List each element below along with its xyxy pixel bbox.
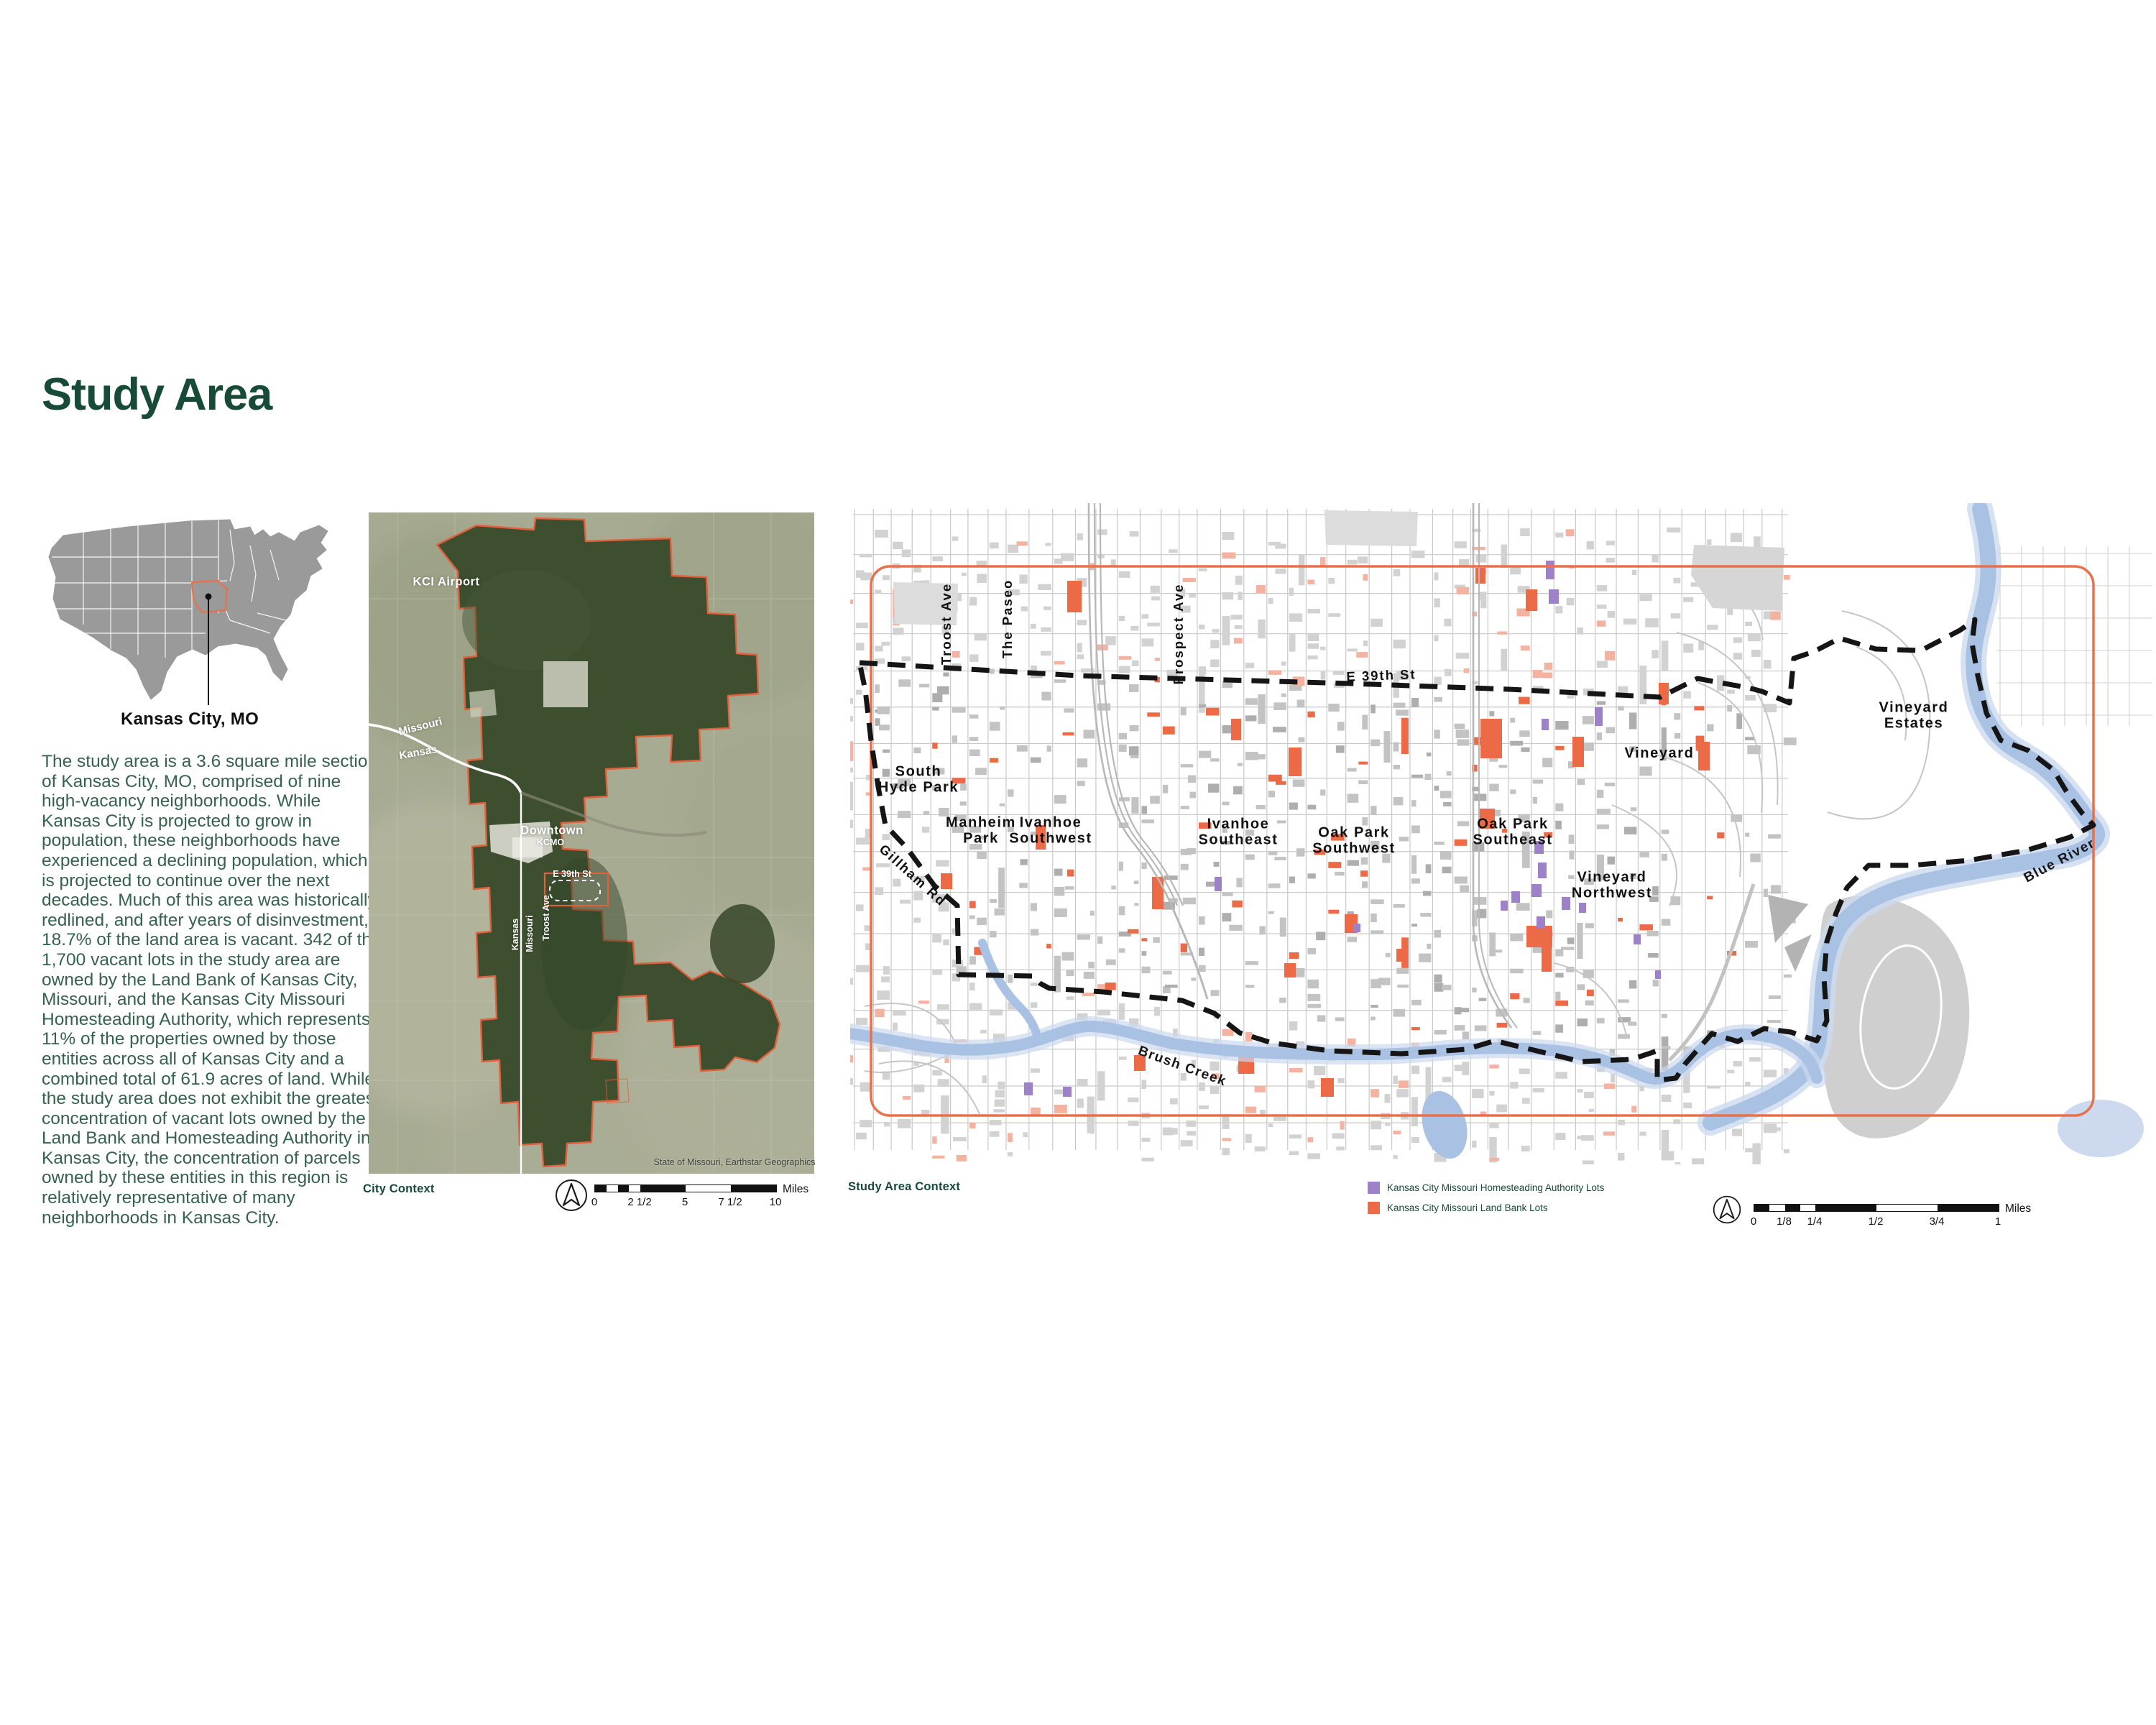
scalebar-tick: 10: [770, 1196, 782, 1208]
legend: Kansas City Missouri Homesteading Author…: [1368, 1182, 1604, 1222]
scalebar-tick: 3/4: [1930, 1215, 1945, 1228]
scalebar-tick: 1/4: [1807, 1215, 1823, 1228]
scalebar-bar: [1754, 1204, 1999, 1212]
kansas-city-dot: [206, 594, 212, 600]
scalebar-tick: 1: [1995, 1215, 2001, 1228]
page-title: Study Area: [42, 369, 272, 420]
suburban-patch: [543, 661, 588, 707]
legend-label: Kansas City Missouri Land Bank Lots: [1387, 1202, 1548, 1213]
north-arrow-icon: [554, 1178, 589, 1213]
study-area-street-map: [850, 503, 2156, 1164]
study-area-context-label: Study Area Context: [848, 1180, 960, 1194]
city-context-scalebar: 02 1/257 1/210Miles: [594, 1182, 824, 1210]
north-arrow-icon: [1712, 1195, 1742, 1225]
legend-item: Kansas City Missouri Homesteading Author…: [1368, 1182, 1604, 1194]
downtown-core-patch: [512, 837, 543, 857]
airport-patch: [469, 689, 497, 717]
study-area-scalebar: 01/81/41/23/41Miles: [1754, 1201, 2055, 1230]
legend-item: Kansas City Missouri Land Bank Lots: [1368, 1202, 1604, 1214]
legend-swatch-icon: [1368, 1182, 1380, 1194]
scalebar-tick: 5: [682, 1196, 688, 1208]
us-outline: [49, 520, 328, 699]
scalebar-unit: Miles: [783, 1183, 808, 1196]
scalebar-tick: 0: [591, 1196, 597, 1208]
scalebar-tick: 0: [1751, 1215, 1756, 1228]
scalebar-tick: 7 1/2: [718, 1196, 742, 1208]
city-context-label: City Context: [363, 1182, 435, 1196]
us-locator-map: Kansas City, MO: [42, 505, 338, 730]
scalebar-tick: 1/8: [1777, 1215, 1792, 1228]
intro-paragraph: The study area is a 3.6 square mile sect…: [42, 752, 382, 1228]
scalebar-tick: 2 1/2: [627, 1196, 651, 1208]
study-area-page: { "title": "Study Area", "colors": { "he…: [0, 0, 2156, 1725]
legend-label: Kansas City Missouri Homesteading Author…: [1387, 1182, 1604, 1193]
us-map-graphic: [42, 505, 338, 730]
scalebar-bar: [594, 1184, 777, 1192]
legend-swatch-icon: [1368, 1202, 1380, 1214]
scalebar-tick: 1/2: [1869, 1215, 1884, 1228]
scalebar-unit: Miles: [2005, 1202, 2031, 1215]
city-context-satellite-map: [369, 512, 814, 1174]
locator-label: Kansas City, MO: [42, 709, 338, 730]
